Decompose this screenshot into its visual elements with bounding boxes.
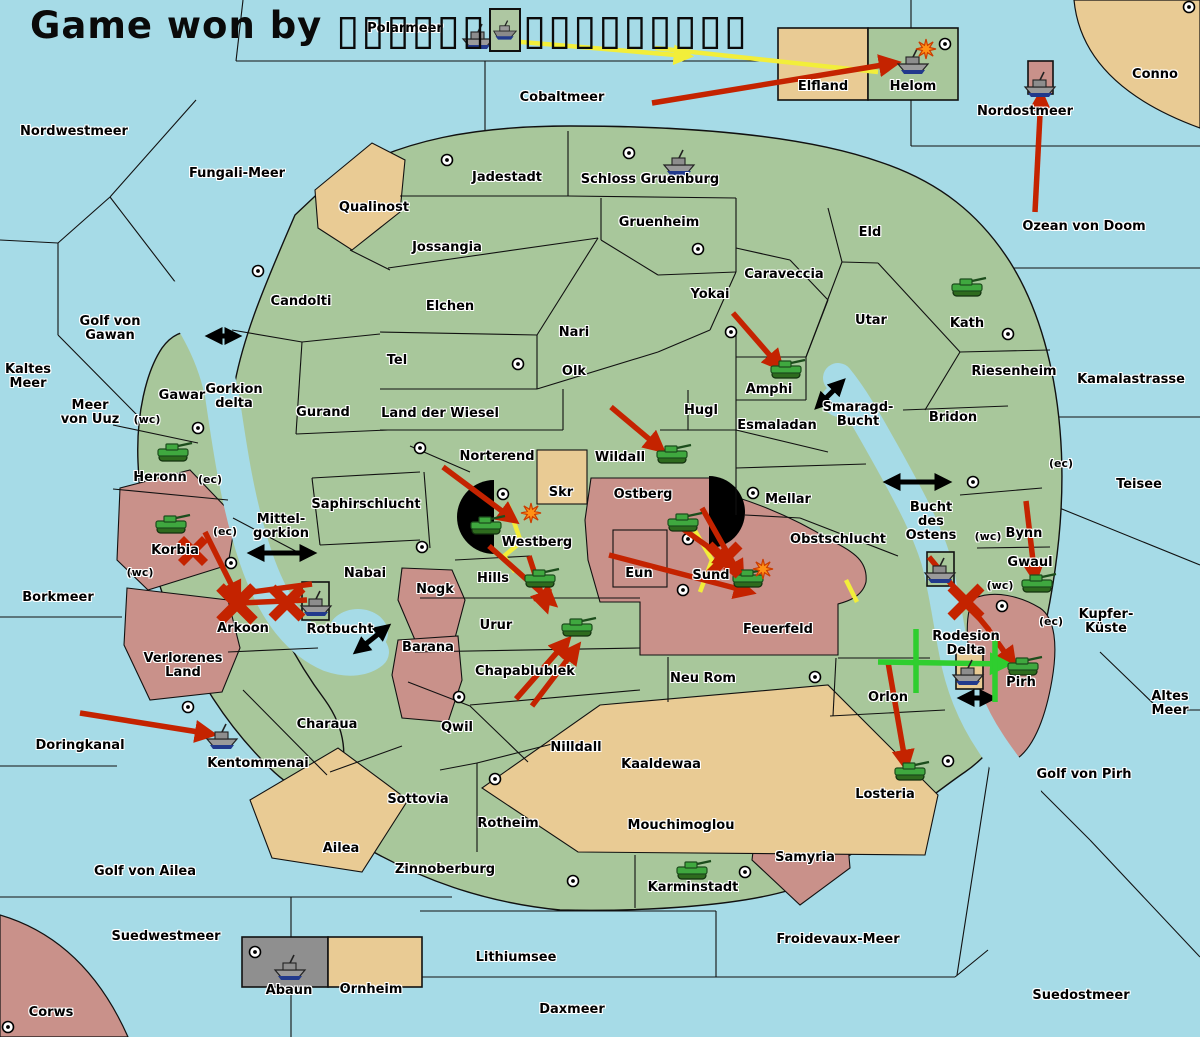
supply-center-dot	[693, 244, 704, 255]
explosion-icon	[916, 39, 936, 59]
explosion-icon	[753, 559, 773, 579]
supply-center-dot	[624, 148, 635, 159]
supply-center-dot	[810, 672, 821, 683]
supply-center-dot	[740, 867, 751, 878]
supply-center-dot	[968, 477, 979, 488]
move-order-arrow	[878, 662, 1006, 664]
supply-center-dot	[183, 702, 194, 713]
supply-center-dot	[253, 266, 264, 277]
polarmeer-fleet-box	[489, 8, 521, 52]
supply-center-dot	[1184, 2, 1195, 13]
supply-center-dot	[250, 947, 261, 958]
explosion-icon	[521, 503, 541, 523]
supply-center-dot	[415, 443, 426, 454]
supply-center-dot	[568, 876, 579, 887]
supply-center-dot	[3, 1022, 14, 1033]
supply-center-dot	[490, 774, 501, 785]
supply-center-dot	[193, 423, 204, 434]
winner-name-tofu-left: ▯▯▯▯▯▯	[336, 4, 487, 56]
supply-center-dot	[417, 542, 428, 553]
supply-center-dot	[226, 558, 237, 569]
supply-center-dot	[678, 585, 689, 596]
supply-center-dot	[748, 488, 759, 499]
supply-center-dot	[454, 692, 465, 703]
attack-order-arrow	[240, 600, 307, 603]
game-map-screenshot: Game won by ▯▯▯▯▯▯ ▯▯▯▯▯▯▯▯▯ PolarmeerCo…	[0, 0, 1200, 1037]
game-result-title: Game won by ▯▯▯▯▯▯ ▯▯▯▯▯▯▯▯▯	[30, 4, 749, 56]
ship-icon	[492, 20, 518, 42]
supply-center-dot	[513, 359, 524, 370]
supply-center-dot	[498, 489, 509, 500]
supply-center-dot	[1003, 329, 1014, 340]
supply-center-dot	[726, 327, 737, 338]
title-text: Game won by	[30, 4, 322, 47]
supply-center-dot	[997, 601, 1008, 612]
map-canvas	[0, 0, 1200, 1037]
supply-center-dot	[943, 756, 954, 767]
winner-name-tofu-right: ▯▯▯▯▯▯▯▯▯	[523, 4, 749, 56]
supply-center-dot	[442, 155, 453, 166]
supply-center-dot	[940, 39, 951, 50]
